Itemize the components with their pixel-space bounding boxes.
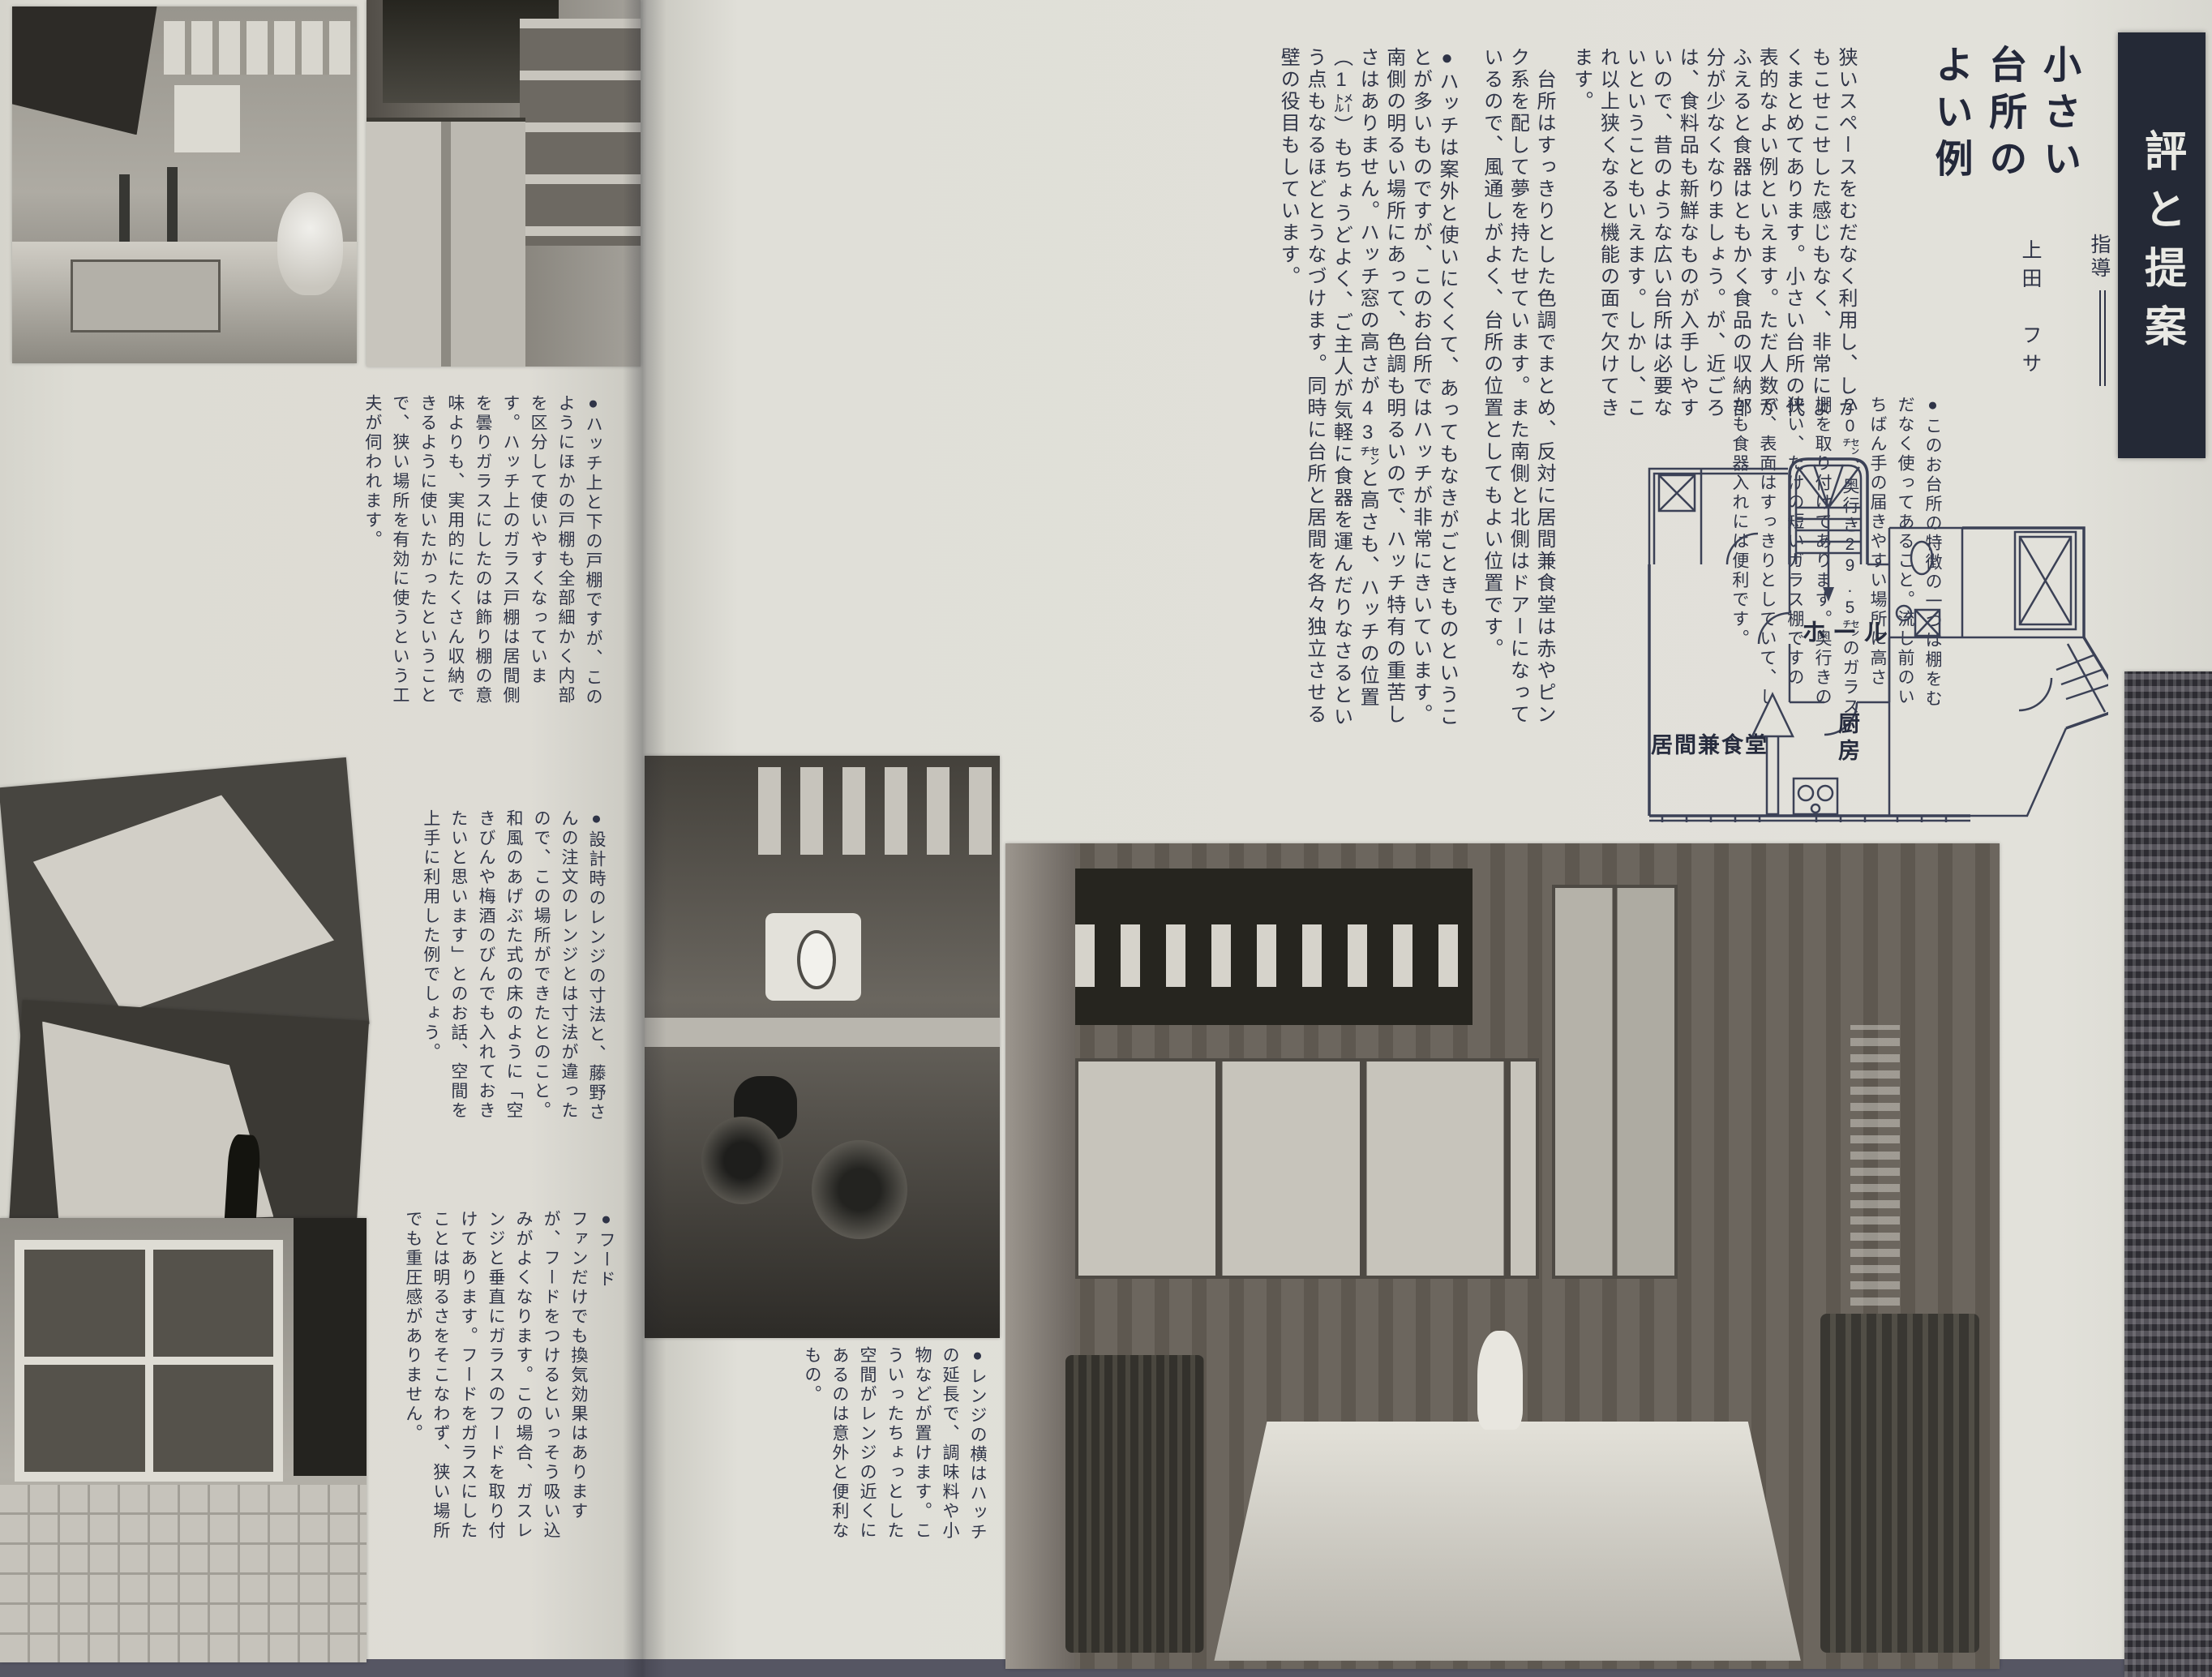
article-title: 小さい 台所の よい例	[1923, 45, 2086, 199]
dining-table-cloth	[1214, 1422, 1800, 1661]
text-block-hatch-cabinets: ●ハッチ上と下の戸棚ですが、このようにほかの戸棚も全部細かく内部を区分して使いや…	[358, 394, 607, 722]
tiled-wall	[0, 1485, 367, 1662]
photo-counter-and-stove	[645, 756, 1000, 1338]
faucet	[119, 174, 130, 242]
photo-dining-room	[1005, 843, 2000, 1669]
bottle	[224, 1134, 261, 1231]
magazine-spread: ●このお台所の特徴の一つは棚をむだなく使ってあること。流し前のいちばん手の届きや…	[0, 0, 2212, 1677]
author-rule	[2099, 290, 2106, 386]
cabinet-shelves	[520, 19, 641, 246]
canister-row	[758, 767, 992, 855]
dish-shelf	[164, 21, 350, 75]
photo-curtain-strip	[2124, 671, 2212, 1677]
sliding-doors	[367, 118, 525, 367]
photo-wall-cabinet	[367, 0, 641, 367]
plan-label-hall: ホール	[1802, 620, 1894, 646]
floor-plan: ホール 居間兼食堂 厨房	[1646, 451, 2108, 855]
paragraph-intro: 狭いスペースをむだなく利用し、しかもこせこせした感じもなく、非常によくまとめてあ…	[1567, 47, 1858, 424]
supervisor-name: 上田 フサ	[2016, 239, 2045, 450]
plan-label-living-dining: 居間兼食堂	[1651, 732, 1768, 757]
range-hood	[12, 6, 157, 135]
photo-caption-marks	[1850, 1025, 1900, 1322]
gas-burner	[701, 1117, 783, 1204]
paragraph-hatch: ●ハッチは案外と使いにくくて、あってもなきがごときものということが多いものですが…	[1275, 47, 1460, 732]
dining-chair	[1820, 1314, 1979, 1652]
sink-basin	[71, 259, 221, 332]
paragraph-color-layout: 台所はすっきりとした色調でまとめ、反対に居間兼食堂は赤やピンク系を配して夢を持た…	[1477, 47, 1557, 732]
faucet	[167, 167, 178, 242]
counter-edge	[645, 1018, 1000, 1047]
photo-kitchen-window	[0, 1218, 367, 1662]
floor-plan-drawing: ホール 居間兼食堂 厨房	[1646, 451, 2108, 855]
text-block-range-space: ●設計時のレンジの寸法と、藤野さんの注文のレンジとは寸法が違ったので、この場所が…	[417, 809, 610, 1134]
jar-shelf	[1075, 869, 1473, 1025]
vase	[1477, 1331, 1522, 1430]
rice-cooker	[277, 192, 343, 296]
hanging-towels	[174, 85, 240, 153]
plan-label-kitchen: 厨房	[1835, 712, 1860, 766]
cupboard	[1005, 843, 1075, 1669]
glass-panel	[1552, 885, 1678, 1279]
dining-chair	[1065, 1355, 1205, 1652]
window-frame	[15, 1240, 283, 1482]
scale-dial	[797, 930, 835, 989]
photo-kitchen-sink	[12, 6, 357, 363]
gas-burner	[812, 1140, 907, 1239]
open-cabinet-door	[29, 787, 339, 1020]
section-tab-label: 評と提案	[2132, 129, 2193, 362]
section-tab: 評と提案	[2118, 32, 2206, 458]
hatch-frosted-glass	[1075, 1058, 1539, 1280]
text-block-hood: ●フード ファンだけでも換気効果はありますが、フードをつけるといっそう吸い込みが…	[399, 1210, 619, 1550]
dark-cabinet	[294, 1218, 367, 1476]
text-block-range-side: ●レンジの横はハッチの延長で、調味料や小物などが置けます。こういったちょっとした…	[798, 1346, 991, 1549]
